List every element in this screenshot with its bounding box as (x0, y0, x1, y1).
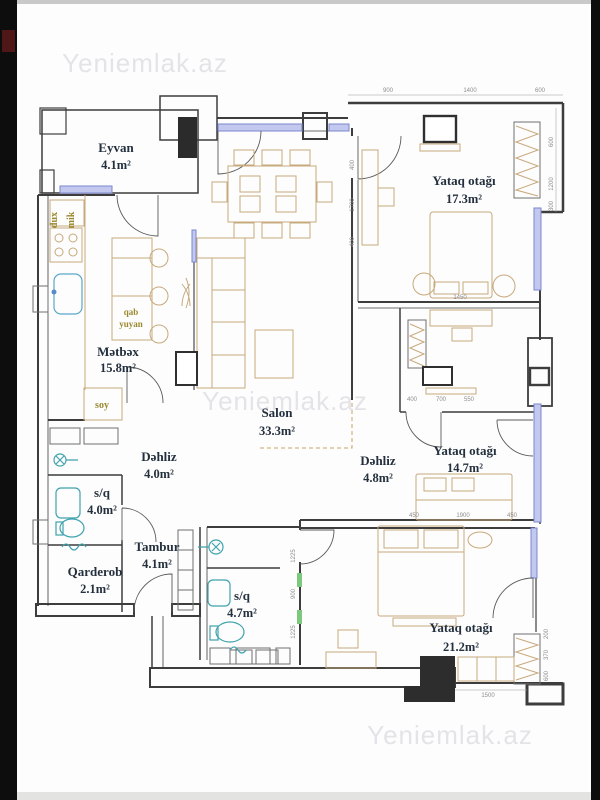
room-label-sq47-name: s/q (234, 588, 251, 603)
red-mark (2, 30, 15, 52)
dim-1500: 1500 (481, 693, 495, 699)
room-label-metbex-area: 15.8m² (100, 361, 136, 375)
tv-study-icon (423, 367, 452, 385)
dim-1900: 1900 (456, 513, 470, 519)
dim-700: 700 (436, 397, 447, 403)
room-label-yataq21-name: Yataq otağı (429, 620, 493, 635)
dim-400-b: 400 (350, 236, 356, 247)
dim-900: 900 (383, 88, 394, 94)
tv-salon-icon (176, 352, 197, 385)
room-label-tambur-name: Tambur (134, 539, 179, 554)
window-bedroom-21 (531, 528, 537, 578)
right-black-bar (591, 0, 600, 800)
dim-600-top: 600 (535, 88, 546, 94)
room-label-metbex-name: Mətbəx (97, 344, 139, 359)
watermark-top: Yeniemlak.az (62, 48, 228, 78)
room-label-yataq21-area: 21.2m² (443, 640, 479, 654)
dim-370: 370 (544, 649, 550, 660)
room-label-yataq14-area: 14.7m² (447, 461, 483, 475)
tv-bedroom17-icon (424, 116, 456, 142)
dim-1225-a: 1225 (291, 549, 297, 563)
room-label-salon-area: 33.3m² (259, 424, 295, 438)
room-label-eyvan-name: Eyvan (98, 140, 134, 155)
label-mik: mik (66, 211, 77, 228)
top-strip (17, 0, 600, 4)
window-bedroom-17 (534, 208, 541, 290)
window-salon-top (218, 124, 302, 131)
room-label-sq40-name: s/q (94, 485, 111, 500)
left-black-bar (0, 0, 17, 800)
room-label-qarderob-area: 2.1m² (80, 582, 110, 596)
window-salon-top-2 (329, 124, 349, 131)
room-label-sq47-area: 4.7m² (227, 606, 257, 620)
room-label-qarderob-name: Qarderob (68, 564, 123, 579)
room-label-yataq17-area: 17.3m² (446, 192, 482, 206)
room-label-dehliz40-name: Dəhliz (141, 449, 177, 464)
dim-1700: 1700 (350, 198, 356, 212)
dim-1450: 1450 (453, 295, 467, 301)
dim-550: 550 (464, 397, 475, 403)
dim-900-b: 900 (291, 588, 297, 599)
dim-1200-right: 1200 (549, 177, 555, 191)
dim-400-c: 400 (407, 397, 418, 403)
label-soy: soy (95, 400, 109, 411)
room-label-eyvan-area: 4.1m² (101, 158, 131, 172)
room-label-dehliz48-name: Dəhliz (360, 453, 396, 468)
floor-plan-page: Yeniemlak.az Yeniemlak.az Yeniemlak.az (0, 0, 600, 800)
dim-600-right: 600 (549, 136, 555, 147)
floor-plan-svg: Yeniemlak.az Yeniemlak.az Yeniemlak.az (0, 0, 600, 800)
room-label-dehliz48-area: 4.8m² (363, 471, 393, 485)
room-label-dehliz40-area: 4.0m² (144, 467, 174, 481)
window-partition (192, 230, 196, 262)
room-label-sq40-area: 4.0m² (87, 503, 117, 517)
dim-450-a: 450 (409, 513, 420, 519)
dim-400-a: 400 (350, 159, 356, 170)
door-opening-green-1 (297, 573, 302, 587)
label-dux: dux (49, 212, 60, 228)
dim-450-b: 450 (507, 513, 518, 519)
dim-300-right: 300 (549, 200, 555, 211)
watermark-bottom: Yeniemlak.az (367, 720, 533, 750)
label-yuyan: yuyan (119, 319, 143, 329)
room-label-yataq14-name: Yataq otağı (433, 443, 497, 458)
dim-200: 200 (544, 628, 550, 639)
label-qab: qab (124, 307, 139, 317)
room-label-tambur-area: 4.1m² (142, 557, 172, 571)
dim-600-b: 600 (544, 670, 550, 681)
room-label-salon-name: Salon (261, 405, 293, 420)
dim-1225-b: 1225 (291, 625, 297, 639)
window-bedroom-14 (534, 404, 541, 522)
bottom-strip (17, 792, 600, 800)
door-opening-green-2 (297, 610, 302, 624)
window-balcony (60, 186, 112, 193)
dim-1400: 1400 (463, 88, 477, 94)
room-label-yataq17-name: Yataq otağı (432, 173, 496, 188)
